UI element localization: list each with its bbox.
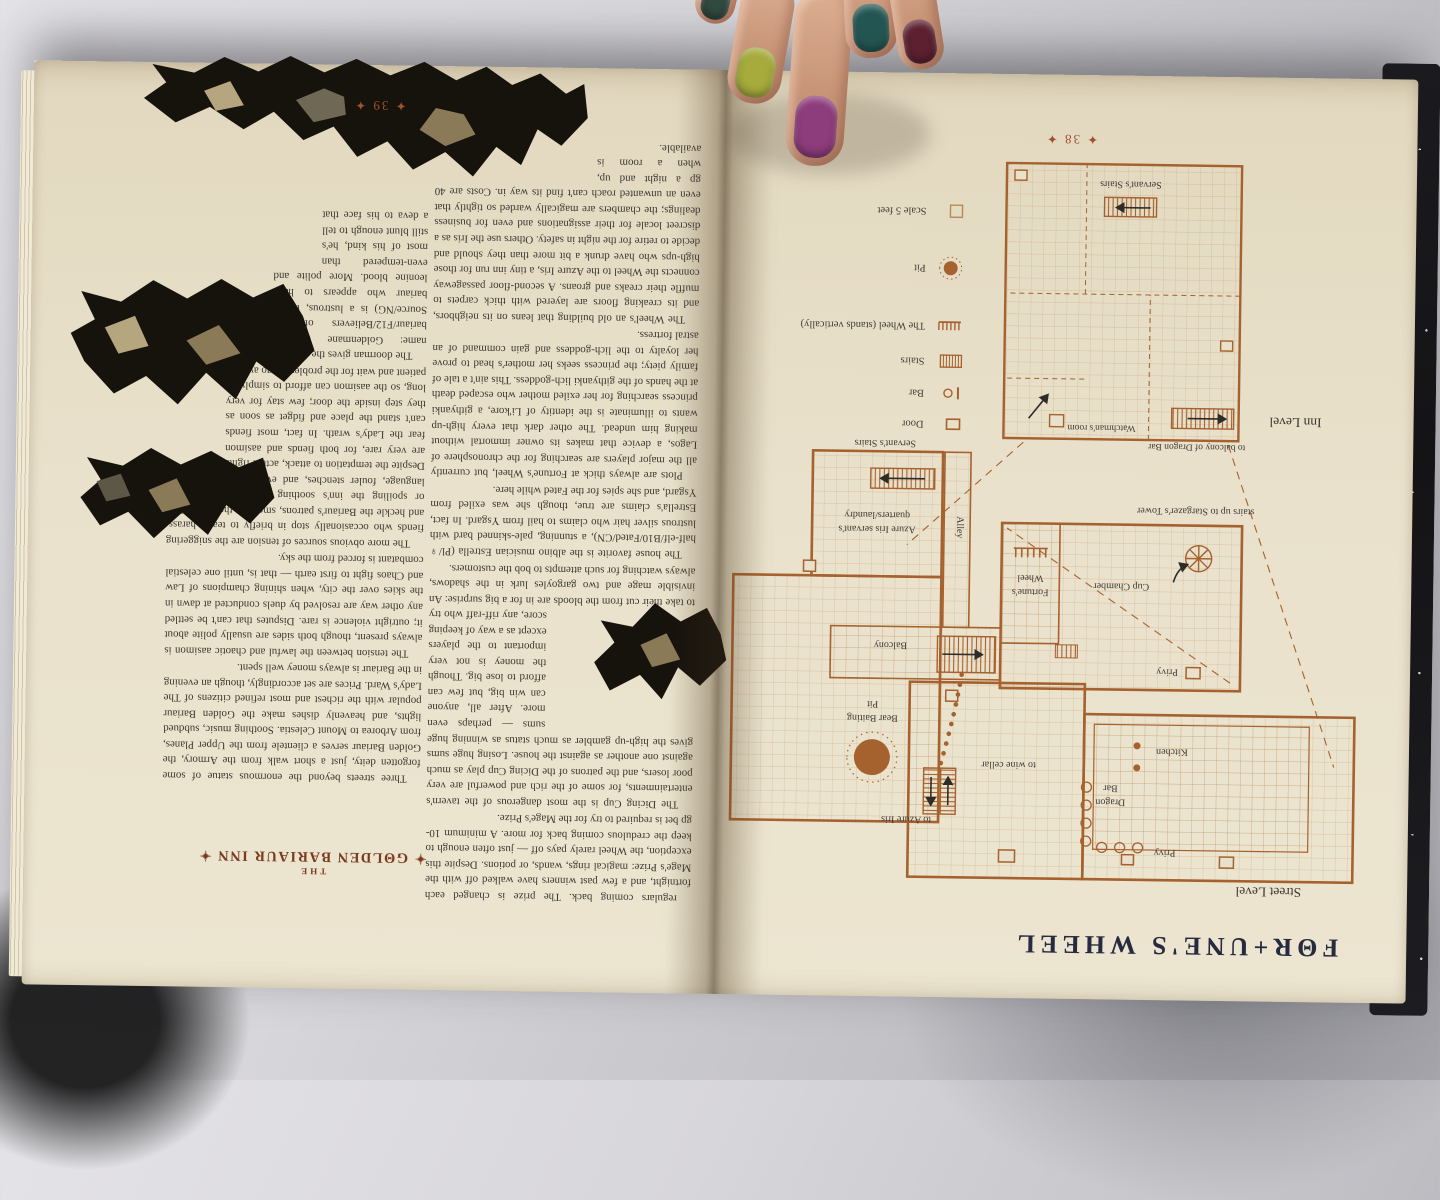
- legend-label: Stairs: [900, 355, 924, 366]
- legend-row: Bar: [909, 385, 962, 402]
- legend-label: Door: [902, 418, 924, 429]
- map-label-fortunes-wheel: Fortune's: [1012, 586, 1049, 598]
- legend-row: Door: [902, 417, 962, 432]
- map-label-stargazer: stairs up to Stargazer's Tower: [1136, 505, 1254, 518]
- heading-main: ✦ GΘLDEN BARIAUR INN ✦: [157, 845, 467, 866]
- map-label-watchman: Watchman's room: [1067, 422, 1136, 433]
- map-label-bear-pit: Bear Baiting: [847, 712, 898, 724]
- wheel-icon: [933, 317, 963, 335]
- golden-bariaur-text-column: Three streets beyond the enormous statue…: [162, 202, 428, 786]
- splotch-text-cutout: [435, 111, 598, 185]
- fortunes-wheel-text-column: regulars coming back. The prize is chang…: [425, 80, 702, 906]
- balcony-stairs: [937, 636, 995, 673]
- spiral-stair-icon: [1185, 546, 1211, 572]
- door-icon: [931, 417, 961, 431]
- legend-label: Pit: [914, 262, 926, 273]
- inn-level-caption: Inn Level: [1269, 415, 1322, 431]
- body-paragraph: Three streets beyond the enormous statue…: [162, 658, 422, 786]
- splotch-text-cutout: [170, 202, 323, 253]
- map-label-azure-quarters: Azure Iris servant's: [838, 523, 916, 535]
- hand: [702, 0, 942, 216]
- map-label-cup-chamber: Cup Chamber: [1093, 580, 1150, 592]
- painted-nail: [792, 94, 838, 159]
- map-label-kitchen: Kitchen: [1156, 746, 1188, 757]
- map-label-privy-top: Privy: [1154, 847, 1176, 858]
- street-level-caption: Street Level: [1235, 884, 1301, 900]
- svg-text:Pit: Pit: [867, 698, 878, 709]
- body-paragraph: The house favorite is the albino musicia…: [430, 480, 697, 561]
- map-label-wine-cellar: to wine cellar: [981, 759, 1036, 771]
- legend-label: The Wheel (stands vertically): [755, 318, 925, 331]
- street-level-buildings: [729, 449, 1358, 883]
- splotch-text-cutout: [167, 377, 226, 470]
- body-paragraph: The Wheel's an old building that leans o…: [433, 136, 702, 326]
- svg-text:Bar: Bar: [1103, 782, 1118, 793]
- map-label-privy-bottom: Privy: [1156, 666, 1178, 677]
- inn-servants-stairs: [1104, 197, 1156, 217]
- pit-icon: [934, 255, 964, 281]
- legend-row: The Wheel (stands vertically): [748, 314, 963, 335]
- legend-row: Stairs: [900, 353, 962, 370]
- body-paragraph: The doorman gives the place its name: Go…: [168, 202, 428, 363]
- azure-servants-stairs: [871, 468, 935, 489]
- painted-nail: [852, 3, 890, 53]
- painted-nail: [901, 17, 939, 65]
- legend-row: Pit: [914, 255, 964, 282]
- body-paragraph: The Dicing Cup is the most dangerous of …: [426, 559, 695, 811]
- map-label-alley: Alley: [954, 516, 965, 538]
- map-label-dragon-bar: Dragon: [1095, 796, 1125, 807]
- svg-text:Wheel: Wheel: [1017, 572, 1043, 583]
- svg-text:quarters/laundry: quarters/laundry: [844, 509, 910, 521]
- map-label-to-azure-iris: to Azure Iris: [881, 813, 931, 825]
- heading-the: THE: [157, 864, 467, 878]
- stairs-icon: [932, 353, 962, 369]
- page-39: regulars coming back. The prize is chang…: [22, 60, 727, 994]
- finger: [841, 0, 898, 59]
- map-label-servants-stairs-street: Servant's Stairs: [854, 437, 916, 449]
- map-label-servants-stairs-inn: Servant's Stairs: [1100, 178, 1162, 190]
- wheel-room-stairs: [1055, 645, 1077, 658]
- splotch-text-cutout: [545, 610, 695, 734]
- painted-nail: [698, 0, 733, 23]
- inn-exit-stairs: [1171, 408, 1233, 429]
- splotch-text-cutout: [168, 252, 273, 361]
- bar-icon: [932, 385, 962, 401]
- map-label-balcony: Balcony: [874, 639, 907, 650]
- body-paragraph: Plots are always thick at Fortune's Whee…: [431, 324, 699, 483]
- legend-label: Bar: [909, 387, 924, 398]
- golden-bariaur-heading: THE ✦ GΘLDEN BARIAUR INN ✦: [157, 845, 467, 878]
- painted-nail: [732, 45, 778, 101]
- body-paragraph: The tension between the lawful and chaot…: [164, 548, 423, 660]
- map-label-to-balcony: to balcony of Dragon Bar: [1147, 441, 1245, 453]
- finger: [723, 0, 798, 108]
- body-paragraph: The more obvious sources of tension are …: [166, 361, 427, 551]
